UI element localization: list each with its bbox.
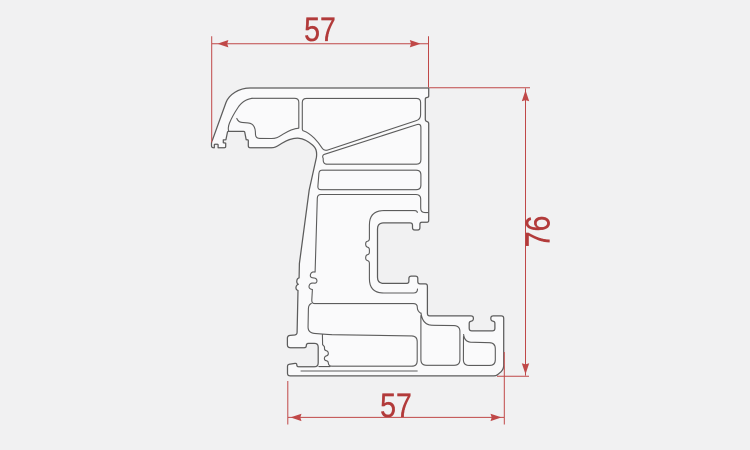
svg-text:57: 57	[380, 386, 412, 424]
svg-text:76: 76	[519, 216, 557, 248]
svg-text:57: 57	[304, 11, 336, 49]
